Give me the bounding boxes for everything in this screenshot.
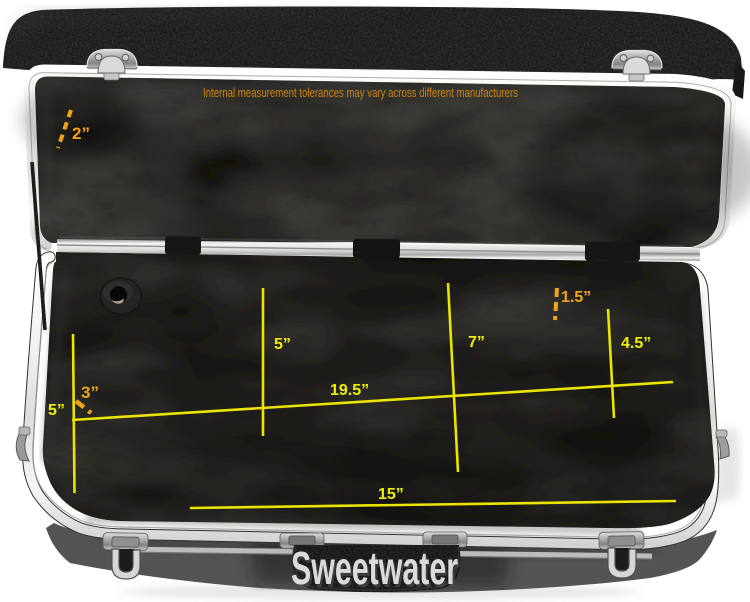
- svg-text:19.5”: 19.5”: [330, 382, 369, 399]
- svg-text:7”: 7”: [468, 334, 485, 351]
- svg-text:1.5”: 1.5”: [561, 289, 591, 306]
- svg-text:2”: 2”: [72, 124, 90, 143]
- svg-text:Sweetwater: Sweetwater: [291, 544, 458, 595]
- svg-text:3”: 3”: [81, 383, 99, 402]
- svg-text:Internal measurement tolerance: Internal measurement tolerances may vary…: [203, 85, 518, 100]
- svg-text:4.5”: 4.5”: [621, 335, 651, 352]
- svg-text:5”: 5”: [274, 336, 291, 353]
- svg-text:5”: 5”: [48, 402, 65, 419]
- svg-text:15”: 15”: [378, 486, 404, 503]
